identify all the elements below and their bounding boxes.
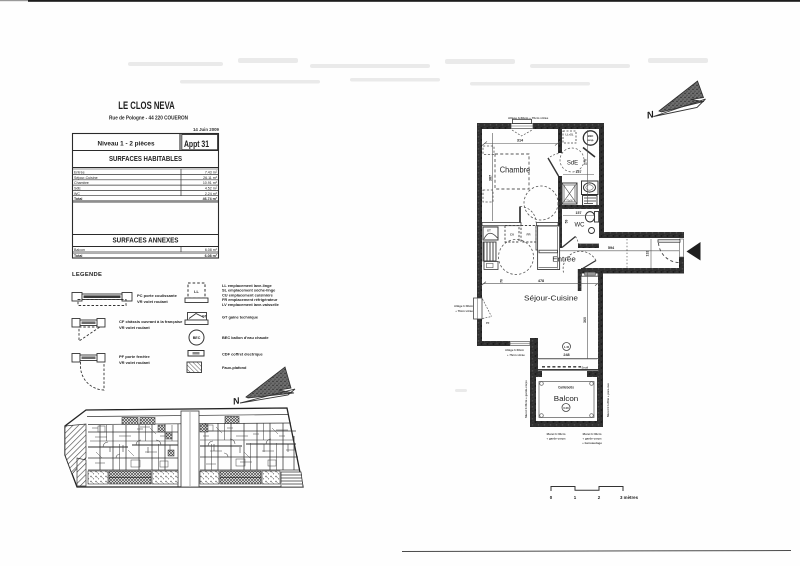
svg-text:+ garde-corps: + garde-corps	[582, 437, 602, 441]
svg-text:59: 59	[565, 220, 569, 224]
svg-text:Séjour-Cuisine: Séjour-Cuisine	[74, 176, 98, 180]
svg-text:+ barreaudage: + barreaudage	[582, 441, 602, 445]
svg-text:BEC: BEC	[588, 134, 594, 138]
svg-text:Entrée: Entrée	[74, 171, 85, 175]
svg-text:LEGENDE: LEGENDE	[72, 272, 102, 278]
svg-text:6.08: 6.08	[563, 406, 569, 410]
svg-text:Caillebotis: Caillebotis	[558, 386, 574, 390]
svg-text:157: 157	[576, 211, 582, 215]
svg-text:2.24 m²: 2.24 m²	[205, 192, 218, 196]
svg-text:7.43 m²: 7.43 m²	[205, 171, 218, 175]
svg-text:Muret h:30cm: Muret h:30cm	[583, 432, 602, 436]
svg-text:1.40: 1.40	[564, 345, 570, 349]
svg-text:132: 132	[646, 251, 650, 257]
svg-text:26.11 m²: 26.11 m²	[203, 176, 218, 180]
svg-text:+ garde-corps: + garde-corps	[546, 437, 566, 441]
svg-text:157: 157	[576, 170, 582, 174]
svg-text:Allège h:36cm: Allège h:36cm	[505, 348, 524, 352]
svg-text:Faux-plafond: Faux-plafond	[222, 365, 247, 370]
svg-text:387: 387	[489, 175, 493, 181]
svg-text:PC porte coulissante: PC porte coulissante	[137, 293, 178, 298]
svg-text:Rue de Pologne - 44 220 COUERO: Rue de Pologne - 44 220 COUERON	[109, 116, 188, 122]
svg-text:314: 314	[517, 139, 524, 143]
svg-text:Allège h:36cm: Allège h:36cm	[454, 304, 473, 308]
svg-text:Séjour-Cuisine: Séjour-Cuisine	[524, 294, 578, 303]
svg-text:SdE: SdE	[567, 161, 578, 167]
svg-text:SURFACES HABITABLES: SURFACES HABITABLES	[109, 156, 182, 163]
svg-text:70: 70	[500, 279, 504, 283]
svg-text:75x90: 75x90	[566, 200, 573, 203]
svg-text:Balcon: Balcon	[74, 248, 85, 252]
svg-text:PF porte fenêtre: PF porte fenêtre	[119, 354, 150, 359]
svg-text:VR volet roulant: VR volet roulant	[119, 325, 150, 330]
svg-text:Seuil: Seuil	[582, 366, 589, 370]
svg-text:14 Juin 2009: 14 Juin 2009	[193, 127, 220, 132]
svg-text:SdE: SdE	[74, 187, 81, 191]
svg-text:Total: Total	[74, 197, 82, 201]
svg-text:GT gaine technique: GT gaine technique	[222, 315, 259, 320]
svg-text:Allège h:36cm + 76cm vitrée: Allège h:36cm + 76cm vitrée	[508, 116, 549, 120]
svg-text:LL: LL	[194, 290, 199, 294]
svg-text:LL+SL: LL+SL	[566, 133, 574, 137]
svg-text:4.52 m²: 4.52 m²	[205, 187, 218, 191]
svg-text:LV emplacement lave-vaissell: LV emplacement lave-vaisselle	[222, 302, 280, 307]
svg-text:Appt 31: Appt 31	[184, 139, 209, 149]
svg-text:GT: GT	[487, 229, 491, 233]
svg-text:594: 594	[608, 246, 615, 250]
svg-text:Entrée: Entrée	[552, 257, 576, 264]
svg-text:46.74 m²: 46.74 m²	[203, 197, 218, 201]
svg-text:VR volet roulant: VR volet roulant	[137, 299, 168, 304]
svg-text:360: 360	[583, 317, 587, 323]
svg-text:478: 478	[538, 279, 544, 283]
svg-text:10.91 m²: 10.91 m²	[203, 181, 218, 185]
svg-text:+ 76cm vitrée: + 76cm vitrée	[507, 353, 525, 357]
svg-text:PF: PF	[486, 321, 490, 325]
svg-text:6.08 m²: 6.08 m²	[205, 254, 218, 258]
svg-text:BEC: BEC	[193, 336, 201, 340]
svg-text:Muret h:30cm + garde-corps: Muret h:30cm + garde-corps	[524, 380, 528, 418]
svg-text:Chambre: Chambre	[74, 181, 89, 185]
svg-text:WC: WC	[575, 223, 586, 229]
svg-text:BEC ballon d'eau chaude: BEC ballon d'eau chaude	[222, 335, 269, 340]
svg-text:WC: WC	[74, 192, 80, 196]
svg-text:Total: Total	[74, 254, 82, 258]
svg-text:CDF coffret électrique: CDF coffret électrique	[222, 352, 263, 357]
svg-text:3 mètres: 3 mètres	[620, 495, 639, 500]
svg-text:Muret h:1.80m + pare-vue: Muret h:1.80m + pare-vue	[606, 383, 610, 417]
svg-text:Niveau 1 - 2 pièces: Niveau 1 - 2 pièces	[98, 142, 156, 148]
svg-text:CF châssis ouvrant à la franç: CF châssis ouvrant à la française	[119, 319, 183, 324]
svg-text:Chambre: Chambre	[500, 166, 531, 175]
svg-text:Muret h:30cm: Muret h:30cm	[547, 432, 566, 436]
svg-text:270: 270	[584, 159, 588, 165]
svg-text:VR volet roulant: VR volet roulant	[119, 360, 150, 365]
svg-text:CU: CU	[510, 233, 514, 237]
svg-text:SURFACES ANNEXES: SURFACES ANNEXES	[113, 238, 179, 245]
svg-text:248: 248	[563, 353, 569, 357]
svg-text:+ 76cm vitrée: + 76cm vitrée	[455, 309, 473, 313]
svg-text:6.08 m²: 6.08 m²	[205, 248, 218, 252]
svg-text:susp.: susp.	[587, 139, 594, 142]
svg-text:LE CLOS NEVA: LE CLOS NEVA	[118, 100, 175, 112]
svg-text:Balcon: Balcon	[554, 394, 579, 403]
